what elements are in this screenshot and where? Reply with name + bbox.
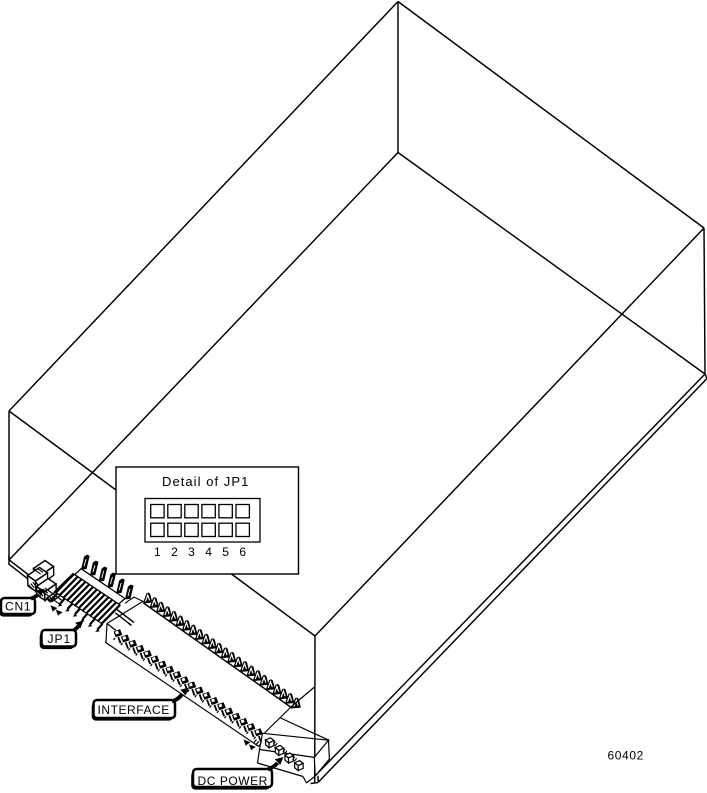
- svg-text:4: 4: [205, 545, 212, 559]
- svg-text:60402: 60402: [608, 749, 644, 763]
- svg-text:CN1: CN1: [5, 600, 31, 614]
- svg-text:JP1: JP1: [48, 632, 72, 646]
- svg-text:2: 2: [171, 545, 178, 559]
- svg-text:3: 3: [188, 545, 195, 559]
- svg-text:6: 6: [239, 545, 246, 559]
- svg-text:5: 5: [222, 545, 229, 559]
- svg-text:Detail of JP1: Detail of JP1: [162, 474, 249, 489]
- svg-text:1: 1: [154, 545, 161, 559]
- svg-text:DC POWER: DC POWER: [198, 774, 268, 788]
- svg-text:INTERFACE: INTERFACE: [98, 703, 170, 717]
